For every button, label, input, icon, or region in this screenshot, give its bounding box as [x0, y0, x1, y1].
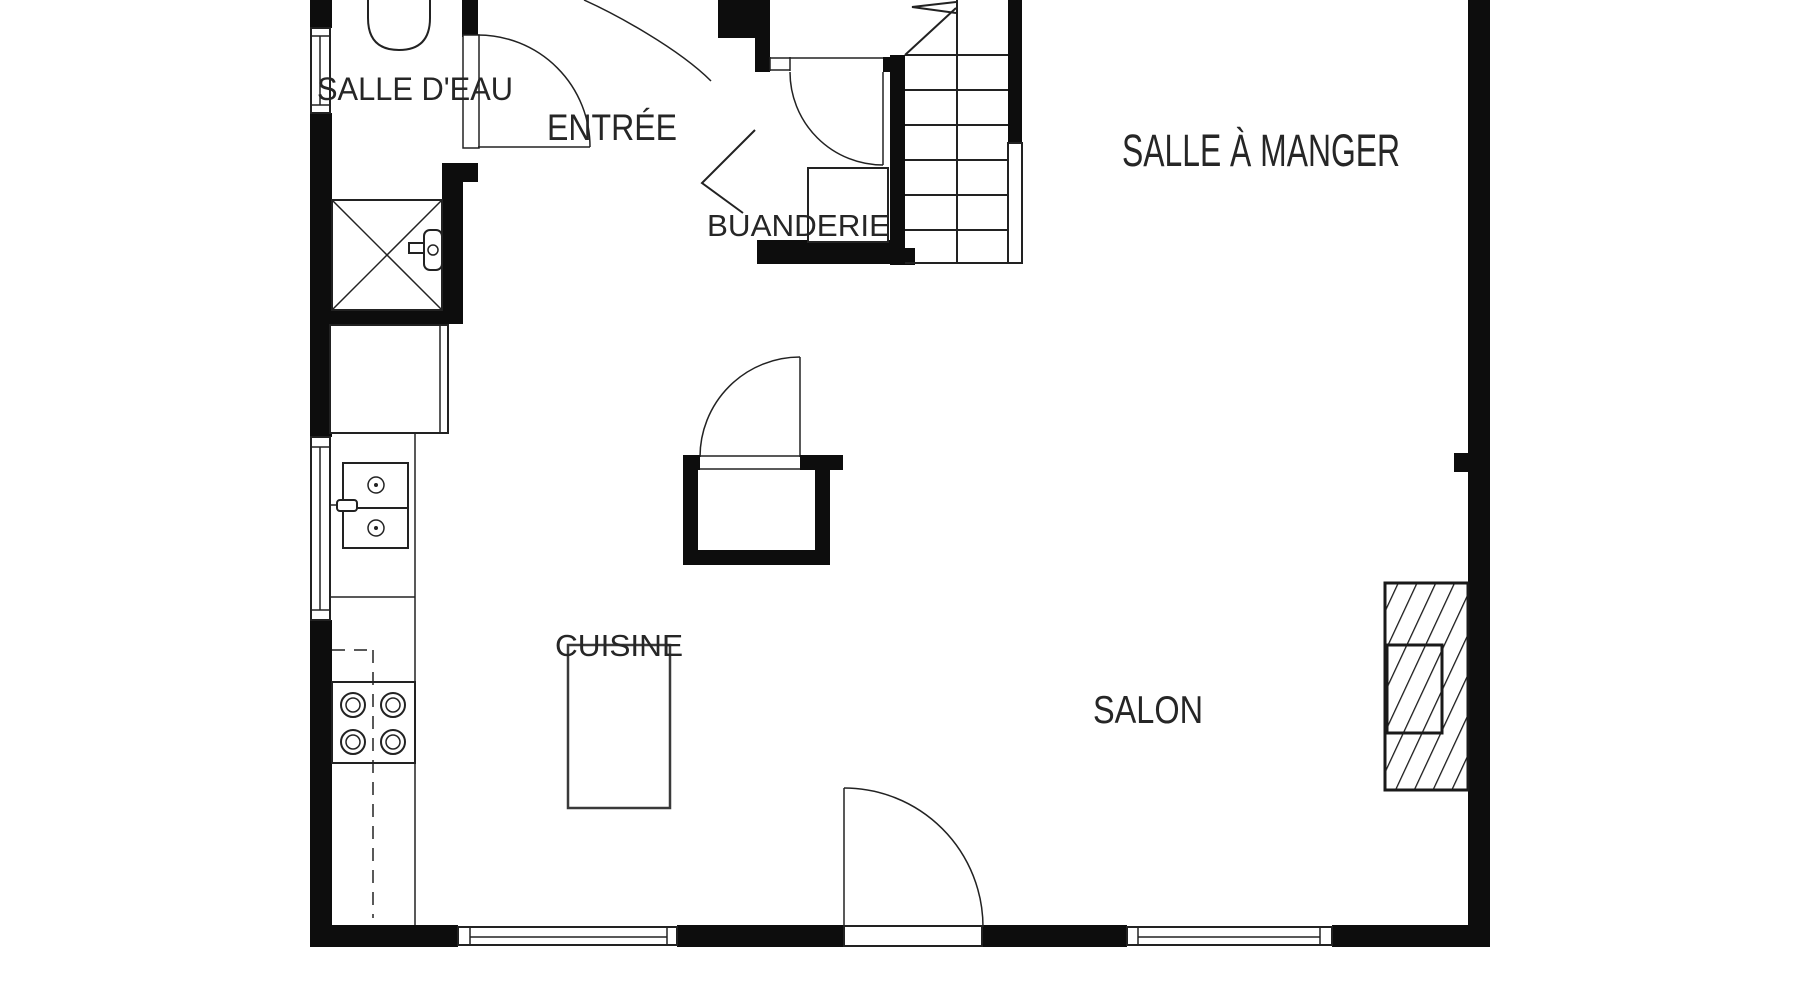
room-label-entree: ENTRÉE [547, 107, 677, 148]
door-storage-island [698, 357, 802, 469]
door-buanderie [790, 72, 883, 165]
room-label-cuisine: CUISINE [555, 628, 683, 663]
toilet [368, 0, 430, 50]
staircase [890, 0, 1022, 265]
faucet-icon [330, 500, 357, 511]
floor-plan: SALLE D'EAU ENTRÉE BUANDERIE SALLE À MAN… [0, 0, 1800, 1000]
door-salon [844, 788, 983, 946]
stairs-up-arrow-icon [905, 2, 956, 55]
refrigerator-cabinet [330, 325, 448, 433]
room-label-salle-deau: SALLE D'EAU [317, 71, 513, 107]
shower [332, 200, 442, 310]
kitchen-table [568, 645, 670, 808]
fireplace [1385, 583, 1468, 790]
storage-island [683, 455, 843, 565]
room-label-buanderie: BUANDERIE [707, 208, 890, 243]
room-label-salon: SALON [1093, 689, 1203, 732]
room-label-salle-a-manger: SALLE À MANGER [1122, 125, 1400, 176]
sink [330, 463, 408, 548]
shower-valve-icon [409, 230, 442, 270]
